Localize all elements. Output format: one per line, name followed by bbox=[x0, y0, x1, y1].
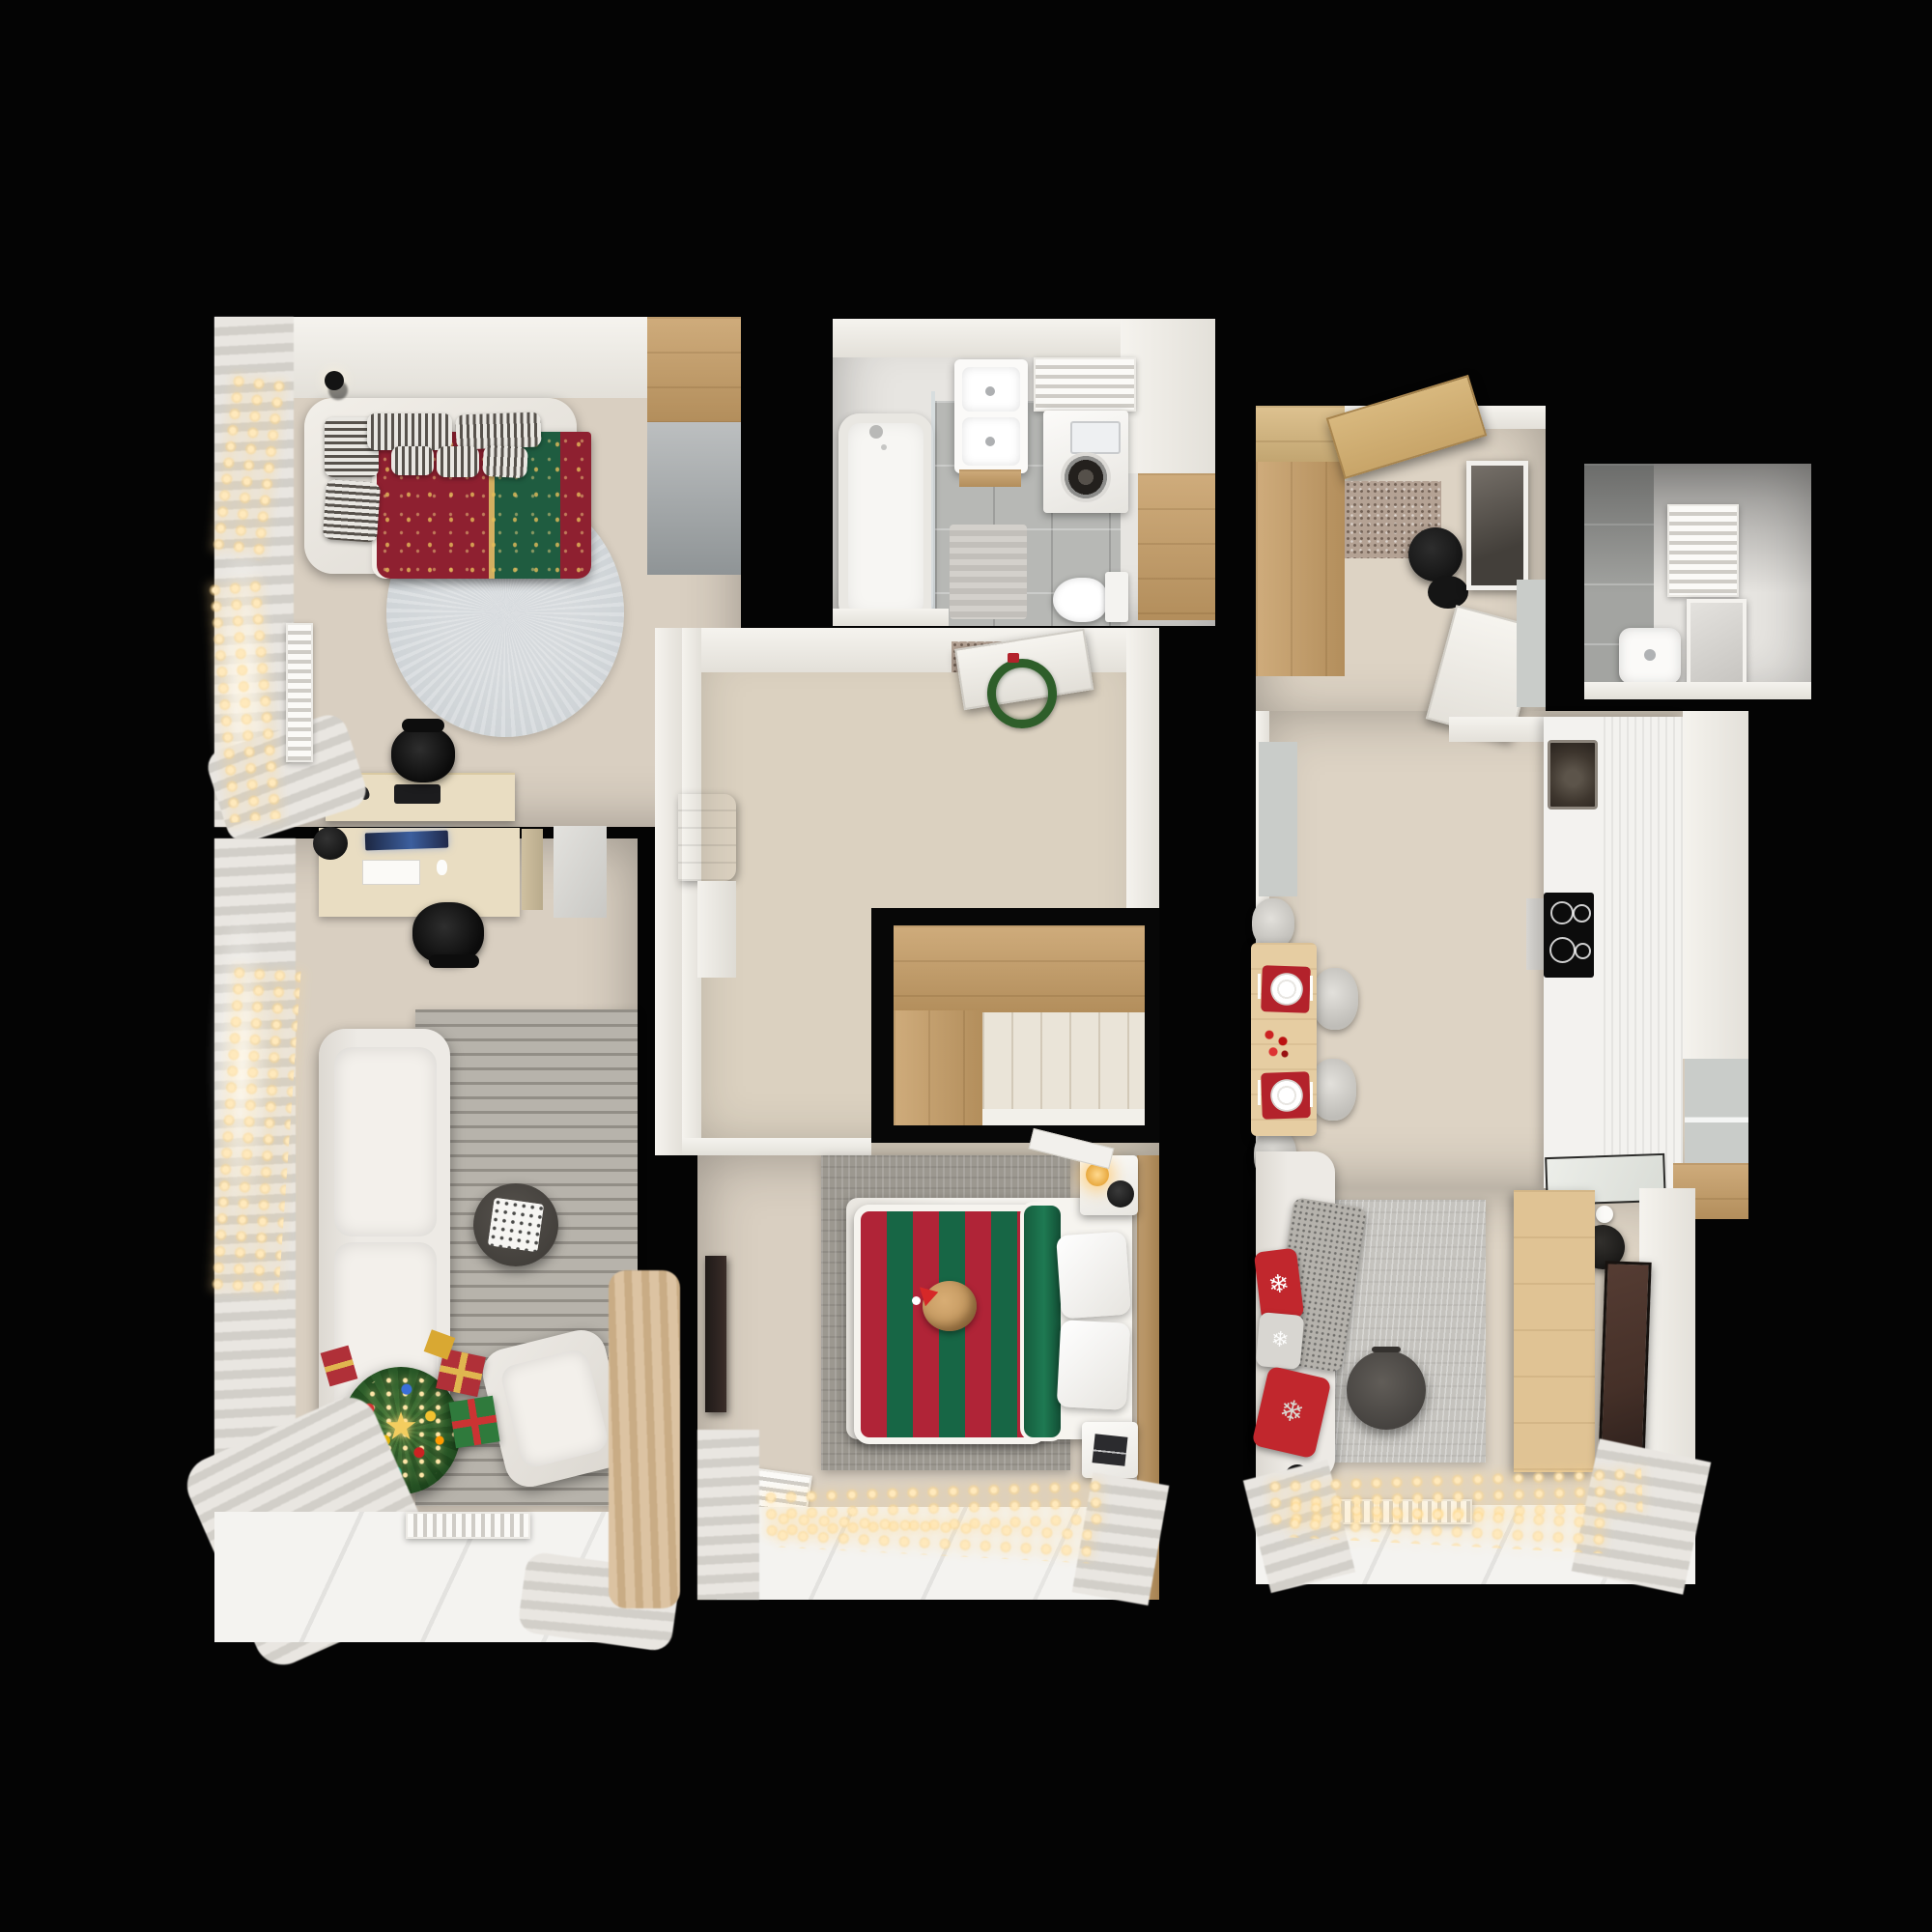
hall-bottom-wall-left bbox=[682, 1138, 871, 1155]
bathroom-shower-screen bbox=[931, 391, 935, 623]
kitchen-counter-ribbed bbox=[1604, 717, 1683, 1188]
bedroom2-curtain-left bbox=[697, 1430, 759, 1600]
dining-plate-2 bbox=[1269, 1078, 1304, 1113]
wc-bottom-wall bbox=[1584, 682, 1811, 699]
dining-chair-2 bbox=[1312, 968, 1358, 1030]
living-hall-wall bbox=[655, 628, 682, 1155]
hall-ac-unit bbox=[678, 794, 736, 881]
entry-stool bbox=[1408, 527, 1463, 582]
living-side-panel bbox=[554, 826, 607, 918]
wc-mirror bbox=[1687, 599, 1747, 690]
bedroom1-ceiling-spotlight bbox=[325, 371, 344, 390]
bathroom-bath-mat bbox=[950, 525, 1027, 619]
entry-mirror bbox=[1466, 461, 1528, 590]
living-sill-radiator bbox=[406, 1512, 530, 1539]
bedroom1-office-chair bbox=[391, 726, 455, 782]
hall-white-cabinet bbox=[697, 881, 736, 978]
hob-burner-4 bbox=[1575, 943, 1591, 959]
bathroom-towel-radiator bbox=[1034, 357, 1136, 412]
hob-burner-1 bbox=[1550, 901, 1574, 924]
bedroom2-pillow-2 bbox=[1057, 1320, 1131, 1410]
bedroom1-wardrobe bbox=[647, 317, 741, 422]
bathroom-tall-cabinet bbox=[1138, 473, 1215, 620]
living-desk-laptop bbox=[365, 831, 449, 851]
entry-gray-panel bbox=[1517, 580, 1546, 707]
bedroom1-pillow-small-3 bbox=[482, 445, 528, 478]
dining-chair-3 bbox=[1310, 1059, 1356, 1121]
dining-cutlery-2 bbox=[1258, 1080, 1261, 1105]
bathroom-basin-bowl-2 bbox=[962, 417, 1020, 466]
hob-burner-2 bbox=[1573, 904, 1591, 923]
rliving-wall-tv bbox=[1598, 1261, 1651, 1467]
bathroom-bathtub bbox=[838, 413, 933, 624]
bedroom2-cat-hat-pompom bbox=[912, 1296, 921, 1305]
bedroom2-wall-tv bbox=[705, 1256, 726, 1412]
bedroom1-pillow-top-2 bbox=[455, 412, 541, 449]
rliving-side-table bbox=[1347, 1350, 1426, 1430]
living-gift-green-1 bbox=[449, 1396, 500, 1449]
rliving-pillow-gray: ❄ bbox=[1256, 1312, 1305, 1370]
hall-closet-top bbox=[894, 925, 1145, 1012]
entry-stool-hat bbox=[1428, 576, 1468, 609]
kitchen-left-gray-panel bbox=[1259, 742, 1297, 896]
hall-wreath-bow bbox=[1008, 653, 1019, 663]
dining-plate-1 bbox=[1269, 972, 1304, 1007]
kitchen-sink bbox=[1548, 740, 1598, 810]
bathroom-washer-tray bbox=[1070, 421, 1121, 454]
bedroom1-pillow-small-2 bbox=[437, 446, 479, 477]
rliving-pillow-red-snowflake: ❄ bbox=[1254, 1248, 1304, 1322]
bedroom1-chair-backrest bbox=[402, 719, 444, 732]
living-desk-mouse bbox=[437, 860, 447, 875]
bedroom1-pillow-left-2 bbox=[323, 479, 381, 543]
living-coffee-table-tray bbox=[488, 1198, 544, 1253]
living-office-chair-back bbox=[429, 954, 479, 968]
dining-chair-1 bbox=[1252, 898, 1294, 949]
bedroom1-pillow-top-1 bbox=[367, 413, 452, 450]
bedroom2-pillow-1 bbox=[1056, 1232, 1131, 1320]
dining-centerpiece-berries bbox=[1258, 1022, 1296, 1065]
bathroom-vanity-wood-base bbox=[959, 469, 1021, 487]
hall-right-wall bbox=[1126, 628, 1159, 908]
living-sofa-cushion-1 bbox=[334, 1047, 437, 1236]
rliving-tv-console bbox=[1514, 1190, 1595, 1472]
bedroom2-speaker bbox=[1107, 1180, 1134, 1207]
bedroom1-desk-keyboard bbox=[394, 784, 440, 804]
kitchen-induction-hob bbox=[1544, 893, 1594, 978]
dining-cutlery-1 bbox=[1258, 974, 1261, 999]
living-beige-curtain bbox=[609, 1270, 680, 1608]
living-desk-drawer bbox=[522, 829, 543, 910]
bathroom-basin-drain bbox=[985, 386, 995, 396]
hob-burner-3 bbox=[1549, 937, 1576, 963]
bathroom-bottom-wall bbox=[833, 609, 949, 626]
hall-closet-alcove-sill bbox=[982, 1109, 1145, 1125]
floorplan-render-canvas: { "scene": { "title": "Top-down 3D rende… bbox=[0, 0, 1932, 1932]
living-desk-paper bbox=[362, 860, 420, 885]
hall-closet-left bbox=[894, 1010, 982, 1125]
kitchen-oven-front bbox=[1526, 898, 1544, 970]
bedroom2-book bbox=[1093, 1434, 1128, 1465]
bedroom2-sleeping-cat bbox=[923, 1281, 977, 1331]
bathroom-toilet-tank bbox=[1105, 572, 1128, 622]
rliving-side-table-handle bbox=[1372, 1347, 1401, 1352]
living-desk-lamp bbox=[313, 827, 348, 860]
bedroom2-duvet-fold bbox=[1020, 1202, 1065, 1441]
wc-towel-radiator bbox=[1667, 504, 1739, 597]
bathroom-tub-faucet bbox=[869, 425, 883, 439]
kitchen-knob-white bbox=[1596, 1206, 1613, 1223]
bathroom-washer-drum bbox=[1061, 452, 1111, 502]
bedroom1-wardrobe-gray-panel bbox=[647, 422, 741, 575]
wc-basin-drain bbox=[1644, 649, 1656, 661]
bedroom1-pillow-small-1 bbox=[391, 446, 434, 475]
kitchen-top-wall bbox=[1449, 717, 1546, 742]
bedroom1-radiator bbox=[286, 623, 313, 762]
bathroom-toilet-bowl bbox=[1053, 578, 1107, 622]
kitchen-right-wall bbox=[1683, 711, 1748, 1059]
